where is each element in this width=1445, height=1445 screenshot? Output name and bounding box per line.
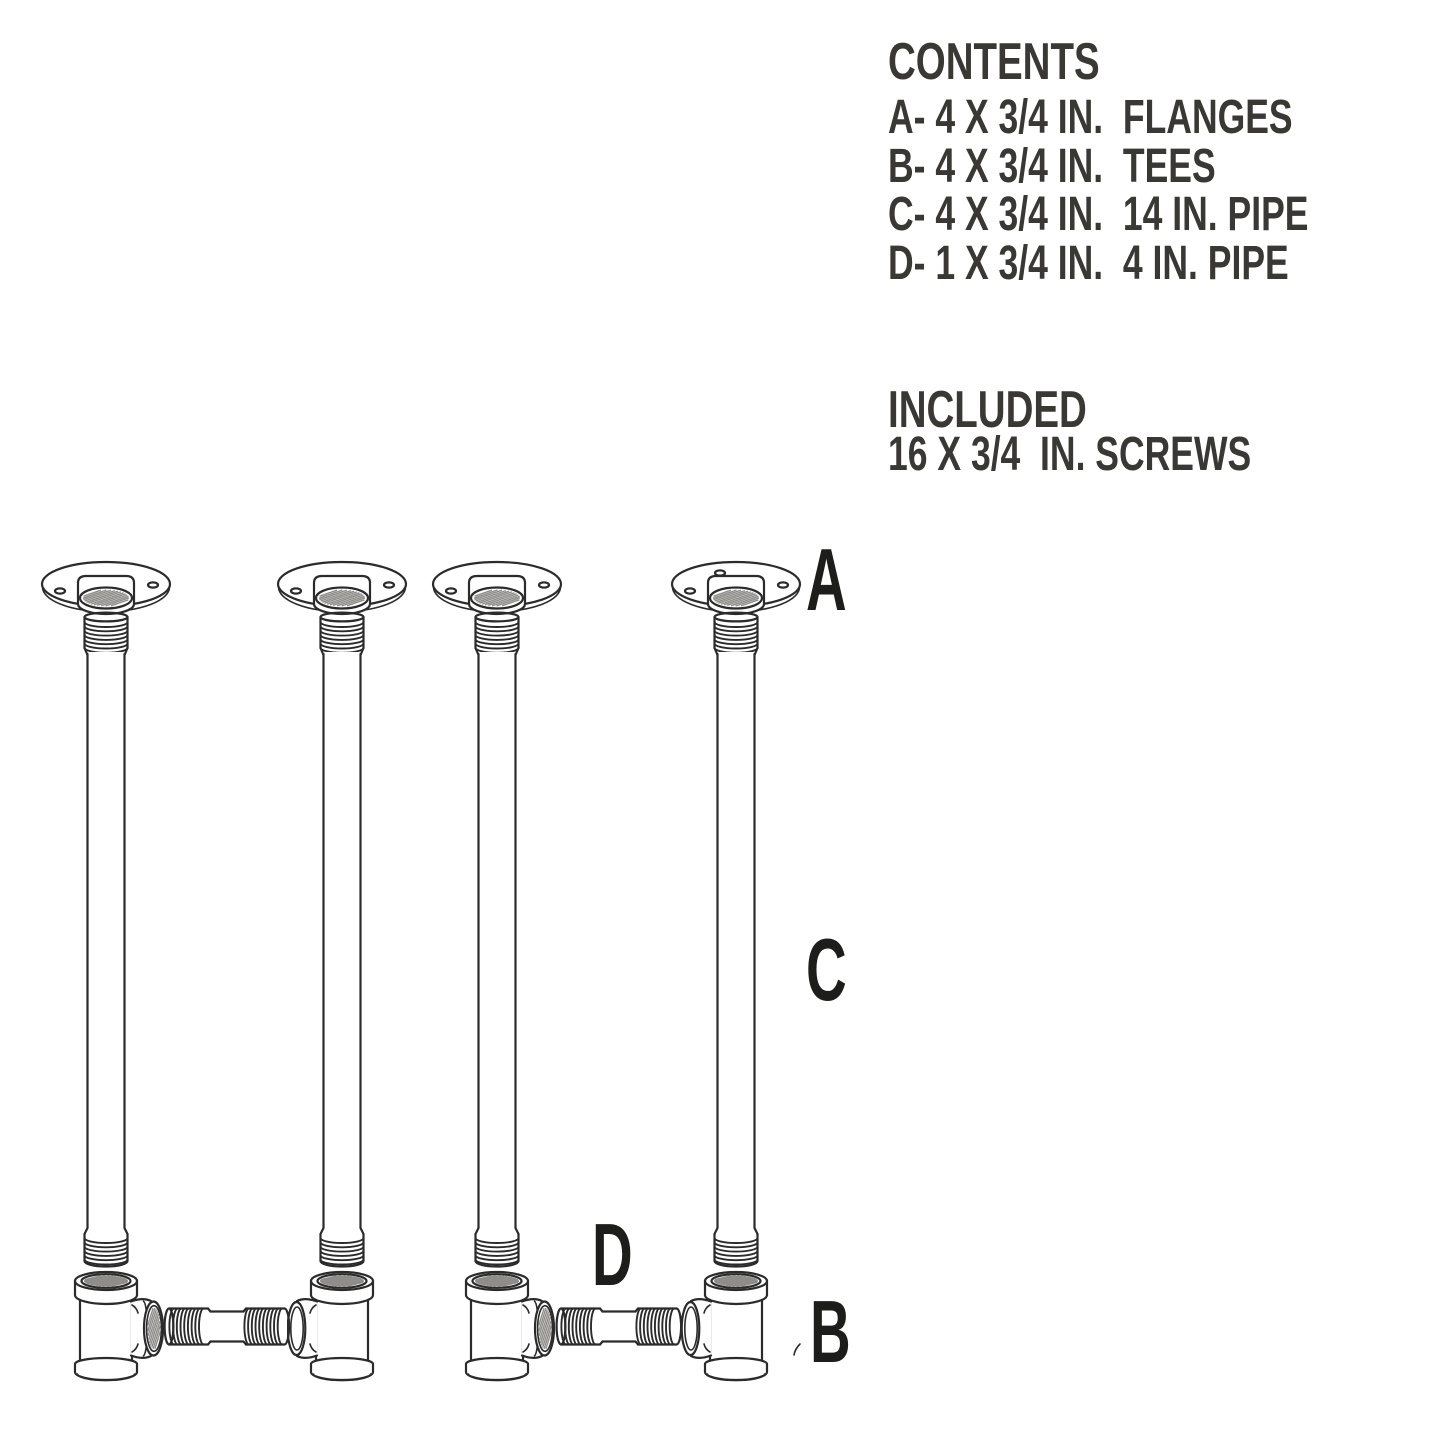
leg-2 <box>278 562 406 1267</box>
contents-title: CONTENTS <box>888 36 1100 89</box>
contents-item-b: B- 4 X 3/4 IN. TEES <box>888 143 1308 192</box>
contents-item-a: A- 4 X 3/4 IN. FLANGES <box>888 94 1308 143</box>
leg-4 <box>672 562 800 1267</box>
instruction-sheet: CONTENTS A- 4 X 3/4 IN. FLANGES B- 4 X 3… <box>0 0 1445 1445</box>
callout-label-pipe: C <box>806 926 847 1014</box>
flange-screw-hole <box>715 570 725 575</box>
included-item-screws: 16 X 3/4 IN. SCREWS <box>888 431 1251 480</box>
tick-mark <box>794 1344 800 1355</box>
callout-label-tee: B <box>810 1288 851 1376</box>
callout-label-short-pipe: D <box>592 1211 633 1299</box>
leg-3 <box>433 562 561 1267</box>
contents-item-d: D- 1 X 3/4 IN. 4 IN. PIPE <box>888 240 1308 289</box>
tee-4 <box>681 1272 768 1381</box>
tee-2 <box>287 1272 374 1381</box>
callout-label-flange: A <box>806 536 847 624</box>
contents-list: A- 4 X 3/4 IN. FLANGES B- 4 X 3/4 IN. TE… <box>888 94 1445 288</box>
short-pipe-2 <box>557 1309 682 1345</box>
tee-3 <box>466 1272 554 1381</box>
tee-1 <box>75 1272 163 1381</box>
leg-1 <box>42 562 170 1267</box>
contents-item-c: C- 4 X 3/4 IN. 14 IN. PIPE <box>888 191 1308 240</box>
short-pipe-1 <box>165 1309 290 1345</box>
